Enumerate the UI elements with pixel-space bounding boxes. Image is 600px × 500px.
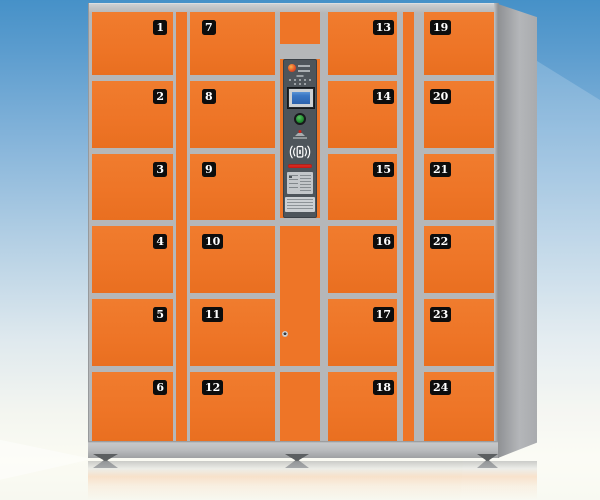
- spec-label: [285, 197, 315, 212]
- brand-text: [298, 65, 310, 72]
- door-number-badge: 10: [202, 234, 223, 249]
- divider: [280, 366, 320, 372]
- control-panel: [283, 59, 317, 218]
- locker-door-7[interactable]: 7: [190, 12, 275, 75]
- door-number-badge: 20: [430, 89, 451, 104]
- locker-door-1[interactable]: 1: [92, 12, 173, 75]
- locker-door-13[interactable]: 13: [328, 12, 397, 75]
- speaker-holes: [294, 83, 306, 85]
- locker-door-2[interactable]: 2: [92, 81, 173, 148]
- door-number-badge: 2: [153, 89, 167, 104]
- speaker-holes: [297, 75, 304, 77]
- locker-door-3[interactable]: 3: [92, 154, 173, 220]
- door-number-badge: 23: [430, 307, 451, 322]
- instruction-label: [287, 172, 313, 194]
- light-beam: [0, 432, 92, 484]
- floor-reflection: [88, 461, 537, 500]
- locker-door-20[interactable]: 20: [424, 81, 494, 148]
- door-number-badge: 4: [153, 234, 167, 249]
- locker-door-5[interactable]: 5: [92, 299, 173, 366]
- locker-door-8[interactable]: 8: [190, 81, 275, 148]
- cabinet-side-panel: [498, 4, 537, 458]
- screen-frame: [289, 89, 313, 107]
- locker-door-9[interactable]: 9: [190, 154, 275, 220]
- locker-door-4[interactable]: 4: [92, 226, 173, 293]
- locker-door-23[interactable]: 23: [424, 299, 494, 366]
- door-number-badge: 19: [430, 20, 451, 35]
- door-number-badge: 6: [153, 380, 167, 395]
- locker-door-11[interactable]: 11: [190, 299, 275, 366]
- power-button[interactable]: [294, 113, 306, 125]
- door-number-badge: 15: [373, 162, 394, 177]
- door-number-badge: 9: [202, 162, 216, 177]
- locker-door-24[interactable]: 24: [424, 372, 494, 441]
- door-number-badge: 18: [373, 380, 394, 395]
- receipt-outlet-icon: [292, 130, 308, 139]
- filler-strip: [403, 12, 414, 441]
- locker-door-10[interactable]: 10: [190, 226, 275, 293]
- locker-door-22[interactable]: 22: [424, 226, 494, 293]
- door-number-badge: 24: [430, 380, 451, 395]
- door-number-badge: 17: [373, 307, 394, 322]
- door-number-badge: 21: [430, 162, 451, 177]
- central-column: [280, 12, 320, 441]
- door-number-badge: 13: [373, 20, 394, 35]
- scene-background: 1 2 3 4 5 6 7 8 9 10 11 12: [0, 0, 600, 500]
- door-number-badge: 5: [153, 307, 167, 322]
- door-number-badge: 12: [202, 380, 223, 395]
- door-number-badge: 8: [202, 89, 216, 104]
- locker-column-1: 1 2 3 4 5 6: [92, 12, 173, 441]
- locker-column-4: 19 20 21 22 23 24: [424, 12, 494, 441]
- door-number-badge: 7: [202, 20, 216, 35]
- lcd-screen[interactable]: [287, 87, 315, 109]
- screen-display: [292, 92, 310, 104]
- locker-door-17[interactable]: 17: [328, 299, 397, 366]
- card-swipe-slot[interactable]: [288, 164, 312, 168]
- locker-door-14[interactable]: 14: [328, 81, 397, 148]
- contactless-card-reader-icon[interactable]: [288, 142, 312, 162]
- locker-column-3: 13 14 15 16 17 18: [328, 12, 397, 441]
- speaker-holes: [289, 79, 311, 81]
- door-number-badge: 14: [373, 89, 394, 104]
- door-number-badge: 3: [153, 162, 167, 177]
- door-number-badge: 11: [202, 307, 223, 322]
- door-number-badge: 1: [153, 20, 167, 35]
- divider: [280, 44, 320, 59]
- door-number-badge: 22: [430, 234, 451, 249]
- locker-door-6[interactable]: 6: [92, 372, 173, 441]
- locker-door-15[interactable]: 15: [328, 154, 397, 220]
- locker-door-21[interactable]: 21: [424, 154, 494, 220]
- filler-strip: [176, 12, 187, 441]
- keyhole[interactable]: [282, 331, 288, 337]
- door-number-badge: 16: [373, 234, 394, 249]
- locker-column-2: 7 8 9 10 11 12: [190, 12, 275, 441]
- locker-door-12[interactable]: 12: [190, 372, 275, 441]
- locker-door-18[interactable]: 18: [328, 372, 397, 441]
- brand-logo-icon: [288, 64, 296, 72]
- locker-door-19[interactable]: 19: [424, 12, 494, 75]
- locker-door-16[interactable]: 16: [328, 226, 397, 293]
- divider: [280, 218, 320, 226]
